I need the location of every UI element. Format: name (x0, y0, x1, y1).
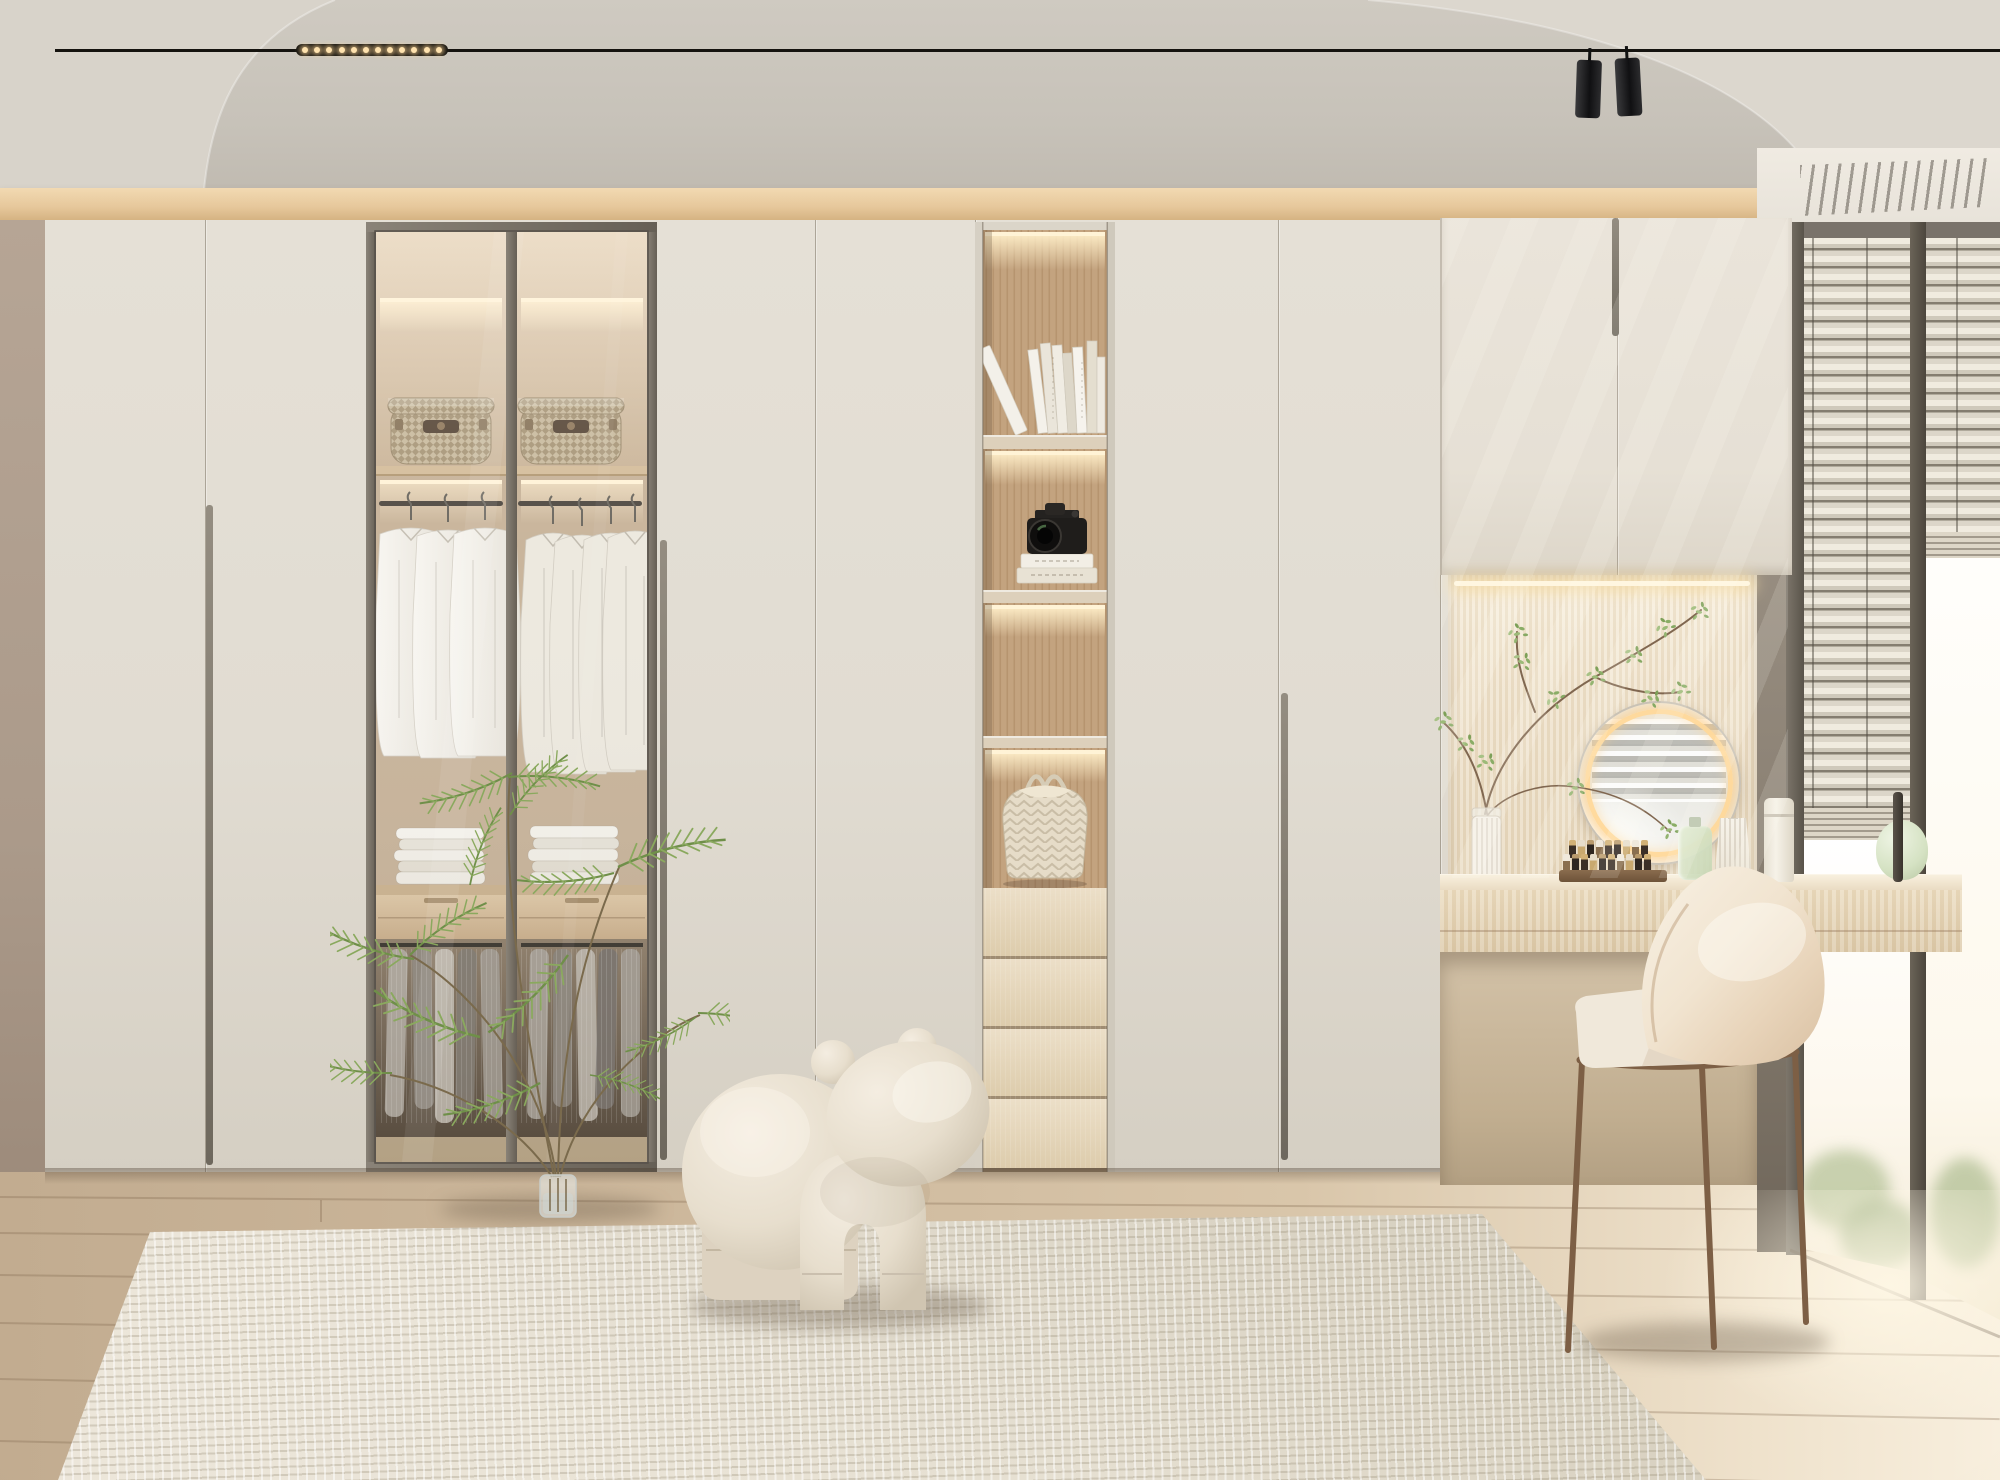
door-seam (205, 220, 206, 1175)
cosmetic-item (1617, 854, 1624, 872)
cosmetic-item (1569, 840, 1576, 858)
cosmetic-item (1623, 840, 1630, 858)
vanity-upper-cabinet (1440, 218, 1792, 575)
wardrobe-base-shadow (45, 1168, 1757, 1184)
cosmetics-row (1563, 854, 1651, 872)
vanity-desk-top (1440, 874, 1962, 891)
camera (1017, 503, 1097, 583)
venetian-blinds-left (1790, 238, 1910, 810)
cosmetic-item (1596, 840, 1603, 858)
desk-drawer-seam (1440, 930, 1962, 932)
under-desk-shadow (1440, 952, 1757, 1185)
cosmetics-row (1569, 840, 1648, 858)
fern-shadow (440, 1196, 660, 1222)
fern-plant (330, 655, 730, 1225)
window-glass-left (1790, 840, 1910, 1272)
door-handle-groove (660, 540, 667, 1160)
organizer-tray (1559, 870, 1667, 882)
door-seam (815, 220, 816, 1175)
glass-vase (540, 1175, 576, 1217)
vanity-mirror (1577, 701, 1741, 865)
cosmetics-organizer (1563, 836, 1663, 882)
floor-plank-seam (0, 1196, 2000, 1212)
cosmetic-item (1632, 840, 1639, 858)
cosmetic-item (1578, 840, 1585, 858)
blind-cord (1866, 238, 1868, 810)
wood-floor (0, 1172, 2000, 1480)
window-wall-return (1757, 218, 1790, 1252)
books (978, 341, 1105, 435)
perfume-bottle-fluted (1714, 818, 1752, 880)
tote-bag (1003, 776, 1087, 888)
cosmetic-item (1641, 840, 1648, 858)
window-frame-top (1790, 222, 2000, 238)
floor-plank-seam (0, 1232, 2000, 1253)
outdoor-greenery (1930, 1158, 2000, 1268)
cabinet-handle-groove (1612, 218, 1619, 336)
floor-plank-seam (0, 1274, 2000, 1302)
blind-cord (1812, 238, 1814, 810)
cosmetic-item (1644, 854, 1651, 872)
ac-vent-grille (1800, 158, 1990, 216)
cosmetic-item (1626, 854, 1633, 872)
wardrobe-wall (45, 220, 1757, 1175)
left-side-wall (0, 220, 48, 1252)
slim-brush-bottle (1893, 792, 1903, 882)
window-mullion (1910, 222, 1926, 1300)
ribbed-vase (1472, 808, 1501, 880)
track-light-rail (55, 49, 2000, 52)
outdoor-greenery (1800, 1150, 1890, 1230)
mirror-blind-reflection (1592, 719, 1726, 802)
blind-cord (1956, 238, 1958, 532)
ceiling-coves (0, 0, 2000, 240)
cosmetic-item (1605, 840, 1612, 858)
oak-trim-strip (0, 188, 1760, 222)
blind-stack-rail (1926, 532, 2000, 562)
display-column (975, 222, 1115, 1175)
vanity-back-wall (1448, 575, 1757, 878)
floor-plank-joint (320, 1200, 322, 1222)
tall-dispenser-bottle (1764, 798, 1794, 882)
green-gourd-vase (1876, 820, 1928, 880)
interior-render (0, 0, 2000, 1480)
perfume-bottle-green (1678, 826, 1712, 880)
vignette-overlay (0, 0, 2000, 1480)
floor-plank-joint (1560, 1330, 1562, 1364)
blind-stack-rail (1790, 808, 1910, 844)
area-rug (0, 0, 2000, 1480)
sunlight-streaks (1442, 218, 1788, 878)
cosmetic-item (1608, 854, 1615, 872)
door-seam (1278, 220, 1279, 1175)
ceiling (0, 0, 2000, 224)
chair-shadow (1580, 1322, 1830, 1362)
outdoor-greenery (1840, 1200, 1910, 1270)
cosmetic-item (1581, 854, 1588, 872)
vanity-chair (1552, 852, 1852, 1362)
glass-display-cabinet (366, 222, 657, 1172)
branch-plant (1425, 592, 1725, 892)
cosmetic-item (1590, 854, 1597, 872)
mirror-window-glow (1577, 777, 1691, 865)
door-seam (1440, 220, 1441, 1175)
cosmetic-item (1572, 854, 1579, 872)
door-seam (975, 220, 976, 1175)
cabinet-door-seam (1617, 218, 1618, 575)
track-led-strip (296, 44, 448, 56)
cosmetic-item (1635, 854, 1642, 872)
floor-plank-joint (640, 1280, 642, 1310)
vanity-desk-drawer (1440, 890, 1962, 952)
floor-plank-seam (0, 1440, 2000, 1480)
floor-plank-joint (1060, 1238, 1062, 1260)
track-spotlight (1614, 57, 1642, 116)
track-spotlight (1575, 60, 1602, 119)
venetian-blinds-right (1926, 238, 2000, 532)
cosmetic-item (1614, 840, 1621, 858)
cosmetic-item (1587, 840, 1594, 858)
vanity-led-strip (1454, 581, 1750, 586)
pony-stool (680, 1022, 990, 1312)
floor-plank-seam (0, 1378, 2000, 1420)
window-soffit (1757, 148, 2000, 225)
door-handle-groove (1281, 693, 1288, 1160)
window-glass-right (1926, 558, 2000, 1320)
window-frame-left (1786, 222, 1804, 1255)
cosmetic-item (1563, 854, 1570, 872)
floor-plank-seam (0, 1322, 2000, 1357)
door-handle-groove (206, 505, 213, 1165)
window-floor-junction (1790, 1245, 2000, 1345)
stool-shadow (690, 1285, 990, 1329)
daylight-pool (1660, 1190, 2000, 1430)
cosmetic-item (1599, 854, 1606, 872)
